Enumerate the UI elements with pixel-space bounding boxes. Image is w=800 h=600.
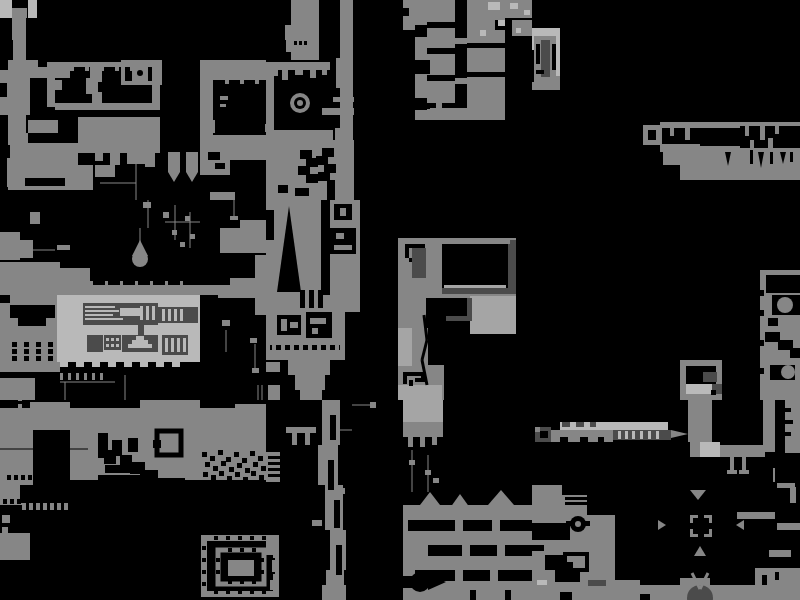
world-map-canvas[interactable] <box>0 0 800 600</box>
game-map-screen <box>0 0 800 600</box>
